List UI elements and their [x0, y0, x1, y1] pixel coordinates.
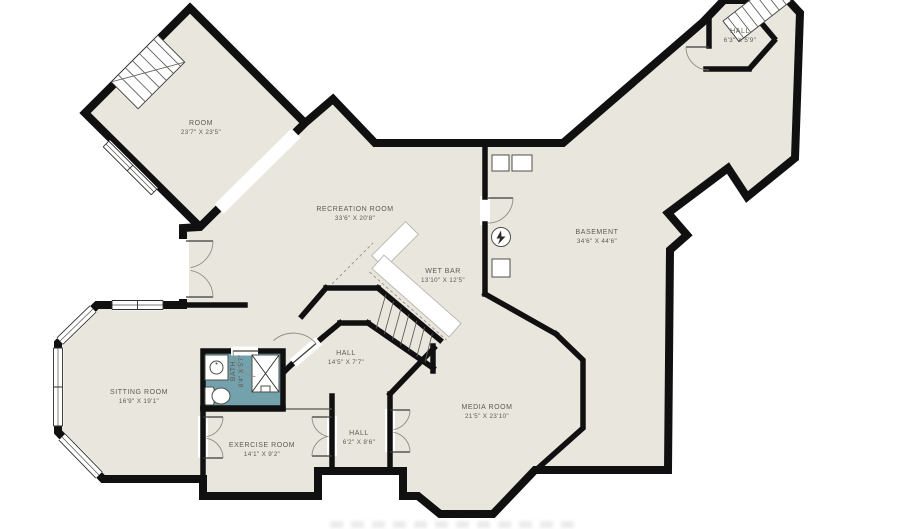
room-dims-hall-mid: 14'5" X 7'7"	[328, 359, 364, 366]
floorplan-canvas: ROOM 23'7" X 23'5" RECREATION ROOM 33'6"…	[0, 0, 900, 529]
room-label-basement: BASEMENT	[576, 229, 619, 236]
room-dims-hall-top: 6'3" X 5'9"	[724, 37, 756, 44]
toilet-icon	[205, 387, 230, 405]
room-label-exercise-room: EXERCISE ROOM	[229, 442, 295, 449]
room-dims-bath: 8'4" X 5'7"	[238, 355, 245, 387]
room-label-sitting-room: SITTING ROOM	[110, 389, 168, 396]
room-dims-exercise-room: 14'1" X 9'2"	[244, 451, 280, 458]
appliance-icon	[492, 155, 509, 171]
electrical-panel-icon	[492, 228, 511, 247]
room-label-hall-small: HALL	[349, 430, 369, 437]
cropped-watermark	[330, 521, 575, 528]
floorplan-drawing: ROOM 23'7" X 23'5" RECREATION ROOM 33'6"…	[0, 0, 900, 529]
appliance-icon	[492, 259, 510, 277]
room-label-room: ROOM	[189, 120, 213, 127]
room-dims-hall-small: 6'2" X 8'6"	[343, 439, 375, 446]
room-dims-recreation-room: 33'6" X 20'8"	[335, 215, 375, 222]
room-label-hall-mid: HALL	[336, 350, 356, 357]
room-dims-media-room: 21'5" X 23'10"	[465, 413, 509, 420]
room-label-recreation-room: RECREATION ROOM	[316, 206, 393, 213]
appliance-icon	[512, 155, 532, 171]
room-label-wet-bar: WET BAR	[425, 268, 461, 275]
room-dims-basement: 34'6" X 44'6"	[577, 238, 617, 245]
room-label-media-room: MEDIA ROOM	[461, 404, 512, 411]
sink-icon	[205, 355, 228, 380]
room-label-hall-top: HALL	[730, 28, 750, 35]
room-dims-room: 23'7" X 23'5"	[181, 129, 221, 136]
shower-icon	[252, 355, 279, 392]
room-label-bath: BATH	[230, 361, 237, 381]
room-dims-sitting-room: 16'9" X 19'1"	[119, 398, 159, 405]
room-dims-wet-bar: 13'10" X 12'5"	[421, 277, 465, 284]
